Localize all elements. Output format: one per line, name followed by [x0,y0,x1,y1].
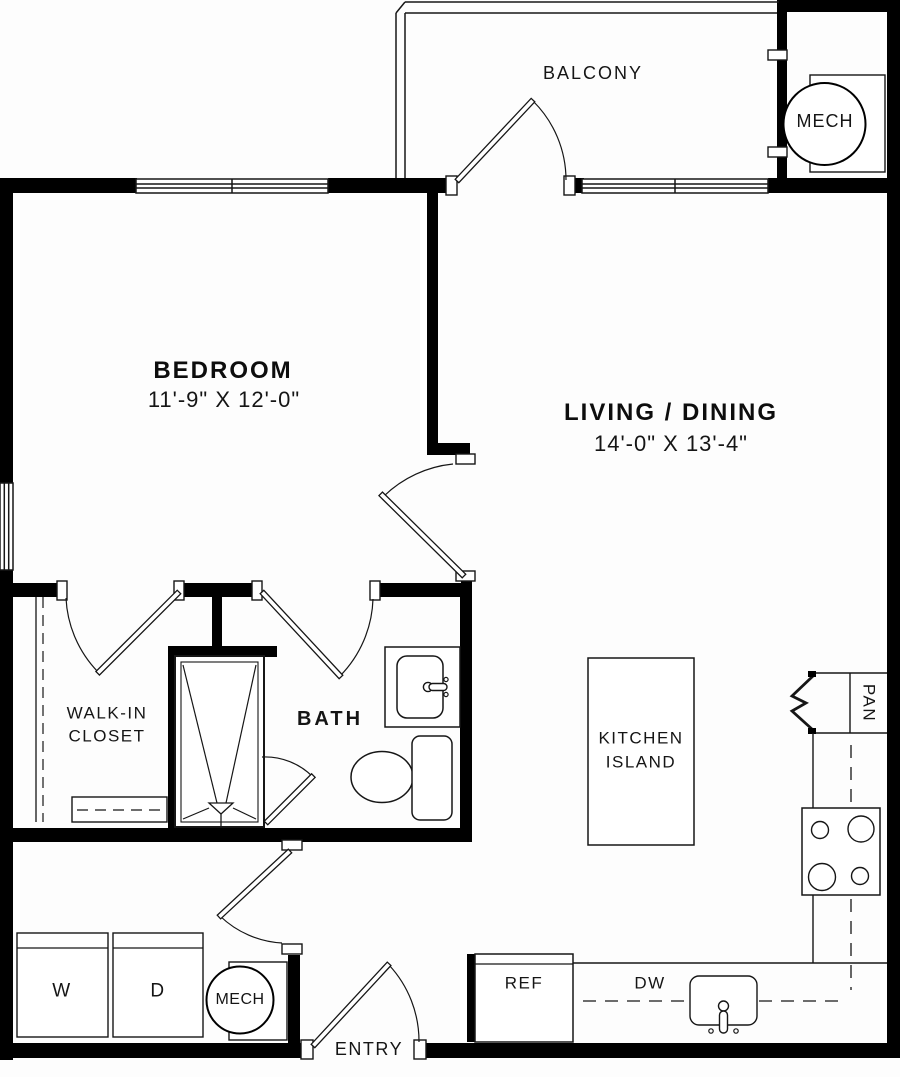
bedroom-door [379,464,466,578]
bedroom-dimensions: 11'-9" X 12'-0" [148,388,300,412]
laundry-door [217,849,291,943]
refrigerator-box [475,954,573,1042]
kitchen-island-label-line2: ISLAND [606,754,676,773]
door-jambs [57,50,787,1059]
floor-plan: BALCONY MECH BEDROOM 11'-9" X 12'-0" LIV… [0,0,900,1077]
shower-door [262,757,315,825]
living-dining-label: LIVING / DINING [564,400,778,426]
entry-label: ENTRY [335,1040,403,1060]
bedroom-window [136,179,328,193]
pantry-label: PAN [859,684,878,722]
walk-in-closet-label-line2: CLOSET [68,728,145,747]
dishwasher-label: DW [634,975,665,994]
kitchen-island-label-line1: KITCHEN [598,730,683,749]
balcony-door [455,98,566,182]
bedroom-side-window [0,483,13,570]
refrigerator-label: REF [505,975,544,994]
stove-cooktop [802,808,880,895]
washer-label: W [52,982,71,1003]
closet-door [66,590,181,675]
bath-label: BATH [297,708,363,730]
kitchen-island-outline [588,658,694,845]
living-window [582,179,768,193]
toilet [351,736,452,820]
bath-door [260,590,373,678]
living-dining-dimensions: 14'-0" X 13'-4" [594,432,748,456]
floor-plan-linework [0,0,900,1077]
entry-door [311,962,419,1048]
dryer-label: D [150,982,165,1003]
doors [66,98,566,1047]
mech-upper-label: MECH [797,112,854,132]
bathroom-sink [385,647,460,727]
walls [0,0,900,1060]
mech-lower-label: MECH [215,991,264,1009]
balcony-label: BALCONY [543,64,643,84]
kitchen-sink [690,976,757,1033]
balcony-railing [396,2,779,178]
shower [175,656,264,827]
walk-in-closet-label-line1: WALK-IN [67,705,148,724]
bedroom-label: BEDROOM [153,358,292,384]
pantry-bifold-door [792,676,813,730]
